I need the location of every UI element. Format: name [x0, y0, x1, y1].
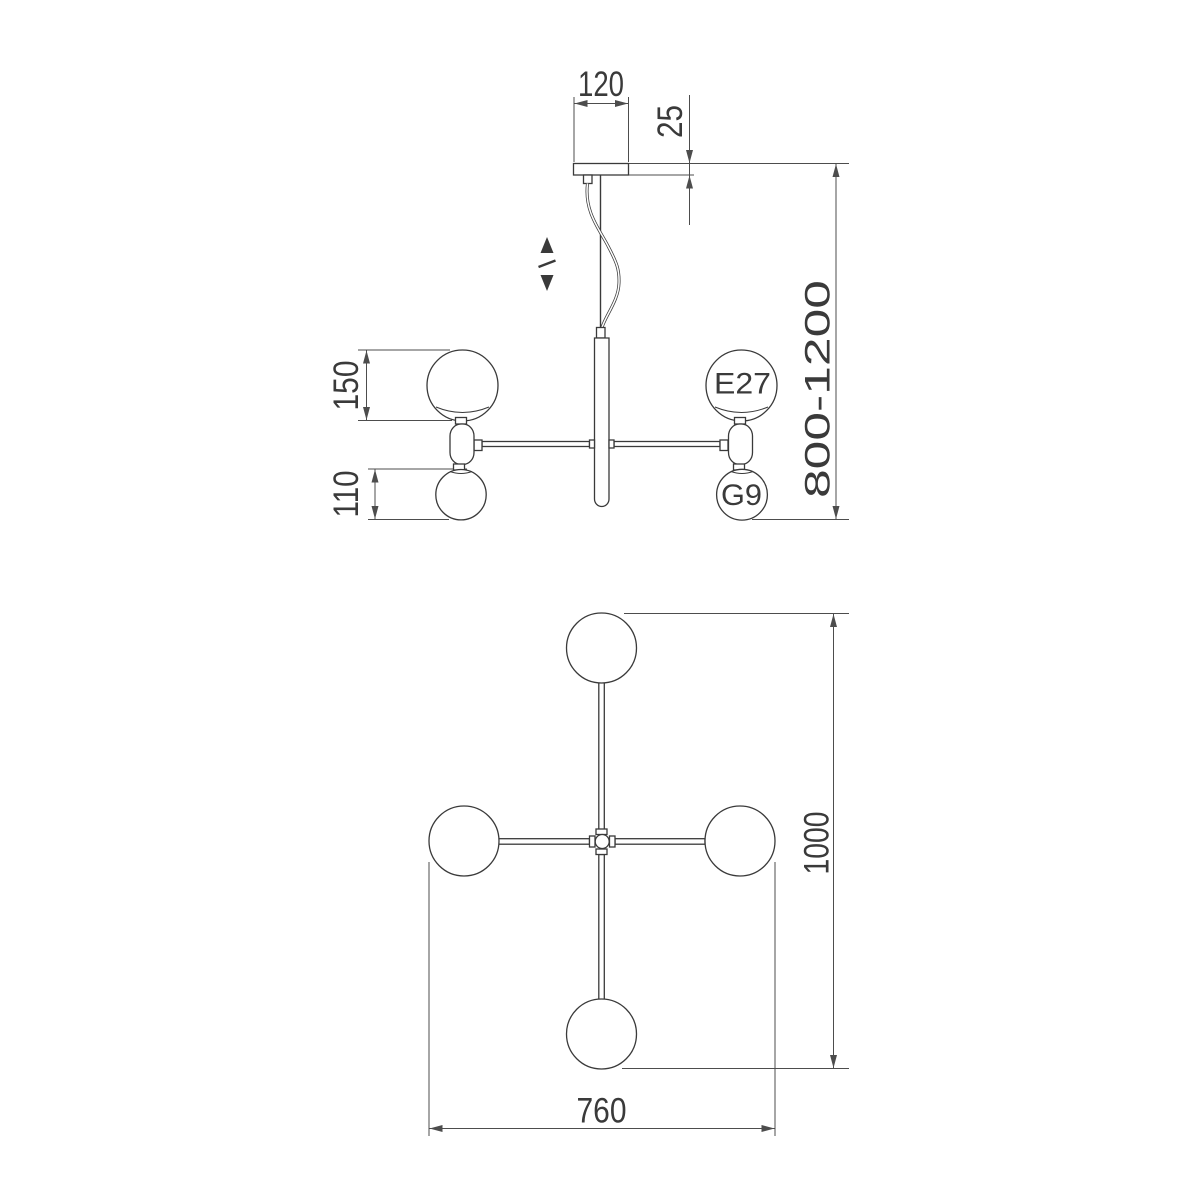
rod-top-connector — [597, 328, 606, 339]
arrowhead-down-icon — [830, 1055, 837, 1068]
arrowhead-up-icon — [833, 164, 840, 177]
arrowhead-down-icon — [686, 150, 693, 163]
drawing-canvas: 120 25 800-1200 150 — [0, 0, 1200, 1200]
cord-grip — [584, 175, 593, 184]
dim-canopy-width-label: 120 — [578, 65, 624, 104]
upper-left-globe — [427, 350, 498, 421]
plan-hub-flange-left — [590, 836, 596, 847]
right-light-assembly: E27 G9 — [706, 350, 777, 520]
dim-plan-length-label: 1000 — [798, 812, 837, 875]
power-cord — [587, 184, 619, 330]
arrowhead-up-icon — [372, 470, 379, 483]
plan-globe-left — [429, 806, 499, 876]
dim-height-range: 800-1200 — [752, 164, 849, 520]
e27-label: E27 — [714, 368, 771, 401]
hub-arm-bracket-left — [474, 440, 482, 451]
arrowhead-down-icon — [833, 506, 840, 519]
plan-arm-left — [497, 839, 590, 845]
rod-body — [595, 338, 610, 507]
arrowhead-left-icon — [430, 1125, 443, 1132]
dim-height-range-label: 800-1200 — [799, 280, 838, 498]
g9-label: G9 — [721, 479, 762, 512]
rod-arm-bracket-right — [609, 440, 614, 448]
dim-canopy-width: 120 — [574, 65, 629, 162]
plan-arm-right — [615, 839, 705, 845]
plan-globe-right — [705, 806, 775, 876]
left-light-assembly — [427, 350, 498, 520]
dim-large-globe-label: 150 — [327, 361, 366, 411]
arrowhead-up-icon — [686, 176, 693, 189]
height-adjust-icon — [539, 237, 556, 291]
plan-globe-top — [567, 613, 637, 683]
lower-left-globe — [436, 470, 486, 520]
plan-arm-bottom — [599, 855, 605, 1000]
hub-arm-bracket-right — [720, 440, 728, 451]
dim-small-globe-label: 110 — [327, 471, 366, 518]
plan-center-hub — [595, 835, 609, 849]
right-arm — [614, 442, 720, 447]
arrowhead-right-icon — [762, 1125, 775, 1132]
plan-hub-flange-right — [610, 836, 616, 847]
plan-globe-bottom — [567, 999, 637, 1069]
plan-hub-flange-bottom — [596, 849, 607, 855]
arrowhead-up-icon — [830, 614, 837, 627]
center-rod — [595, 328, 610, 507]
plan-arm-top — [599, 682, 605, 830]
arrowhead-down-icon — [372, 506, 379, 519]
adjust-slash — [539, 261, 556, 268]
rod-arm-bracket-left — [590, 440, 595, 448]
suspension — [584, 175, 620, 329]
right-socket-hub — [729, 424, 753, 465]
arrow-up-icon — [541, 237, 554, 253]
dim-canopy-thickness-label: 25 — [651, 105, 690, 138]
left-socket-hub — [450, 424, 474, 465]
plan-arms — [497, 682, 705, 1000]
ceiling-canopy — [574, 164, 629, 176]
side-view: 120 25 800-1200 150 — [327, 65, 849, 520]
left-hub-top-neck — [456, 418, 467, 425]
dim-canopy-thickness: 25 — [629, 95, 849, 225]
dim-plan-width-label: 760 — [577, 1092, 627, 1131]
lamp-technical-drawing: 120 25 800-1200 150 — [0, 0, 1200, 1200]
right-hub-top-neck — [735, 418, 746, 425]
arrow-down-icon — [541, 275, 554, 291]
left-arm — [482, 442, 590, 447]
plan-view: 1000 760 — [429, 613, 849, 1136]
plan-hub-flange-top — [596, 829, 607, 835]
